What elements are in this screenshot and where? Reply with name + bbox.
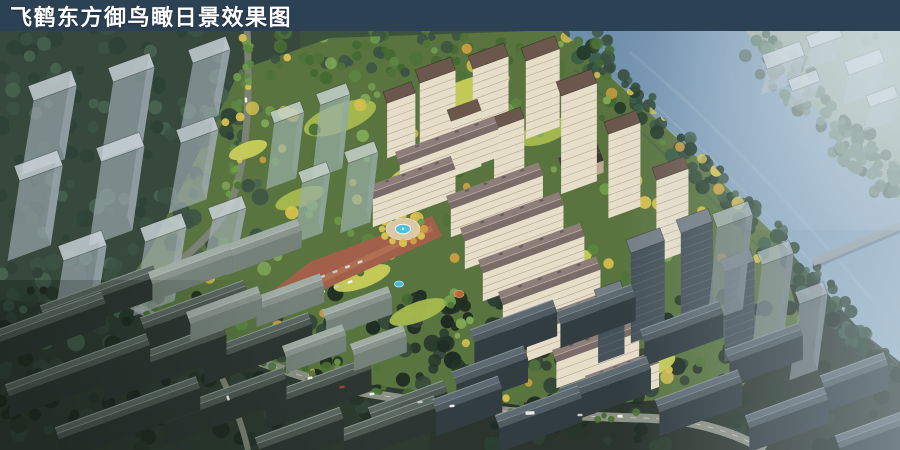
title-bar: 飞鹤东方御鸟瞰日景效果图 (0, 0, 900, 31)
autumn-tree (418, 219, 425, 226)
autumn-tree (389, 238, 396, 245)
autumn-tree (420, 225, 428, 233)
autumn-tree (410, 214, 417, 221)
autumn-tree (410, 238, 417, 245)
residential-tower (556, 69, 597, 194)
autumn-tree (399, 239, 407, 247)
rendering-viewport: 飞鹤东方御鸟瞰日景效果图 (0, 0, 900, 450)
autumn-tree (379, 226, 385, 232)
car (577, 414, 582, 417)
aerial-rendering (0, 0, 900, 450)
autumn-tree (381, 232, 388, 239)
autumn-tree (417, 232, 425, 240)
car (489, 409, 494, 412)
rendering-title: 飞鹤东方御鸟瞰日景效果图 (10, 0, 292, 32)
car (245, 97, 248, 102)
car (525, 411, 534, 415)
residential-tower (521, 36, 560, 140)
